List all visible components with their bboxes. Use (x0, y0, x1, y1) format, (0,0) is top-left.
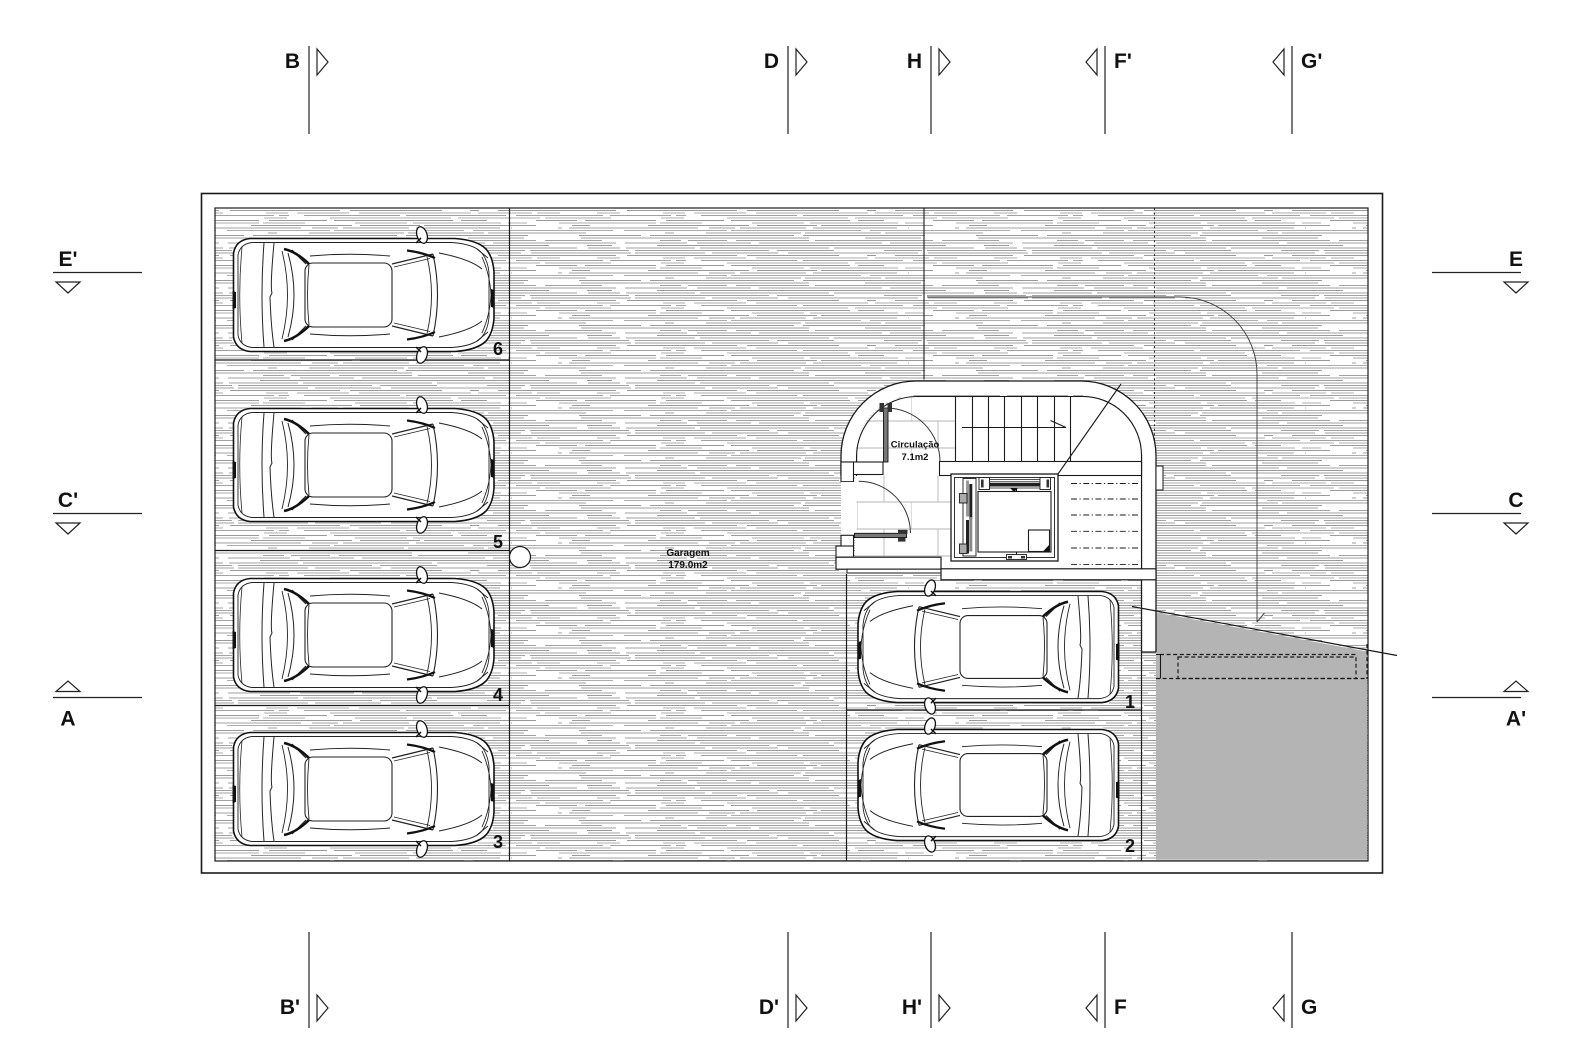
svg-text:G: G (1301, 996, 1317, 1019)
svg-text:B': B' (280, 996, 300, 1019)
svg-text:A': A' (1506, 708, 1526, 731)
svg-text:D': D' (759, 996, 779, 1019)
svg-text:2: 2 (1125, 836, 1135, 856)
svg-text:Garagem: Garagem (666, 548, 709, 559)
svg-text:F': F' (1114, 50, 1132, 73)
svg-text:C: C (1508, 489, 1523, 512)
svg-text:4: 4 (493, 685, 503, 705)
svg-text:5: 5 (493, 532, 503, 552)
svg-text:G': G' (1301, 50, 1322, 73)
svg-text:D: D (764, 50, 779, 73)
svg-text:B: B (285, 50, 300, 73)
svg-text:F: F (1114, 996, 1127, 1019)
svg-text:E': E' (58, 248, 77, 271)
svg-text:7.1m2: 7.1m2 (902, 452, 929, 463)
svg-text:179.0m2: 179.0m2 (668, 560, 708, 571)
svg-text:Circulação: Circulação (891, 440, 940, 451)
svg-text:H': H' (902, 996, 922, 1019)
svg-text:1: 1 (1125, 692, 1135, 712)
svg-text:H: H (907, 50, 922, 73)
svg-text:E: E (1509, 248, 1523, 271)
svg-text:A: A (60, 708, 75, 731)
svg-text:3: 3 (493, 832, 503, 852)
svg-text:C': C' (58, 489, 78, 512)
svg-text:6: 6 (493, 339, 503, 359)
